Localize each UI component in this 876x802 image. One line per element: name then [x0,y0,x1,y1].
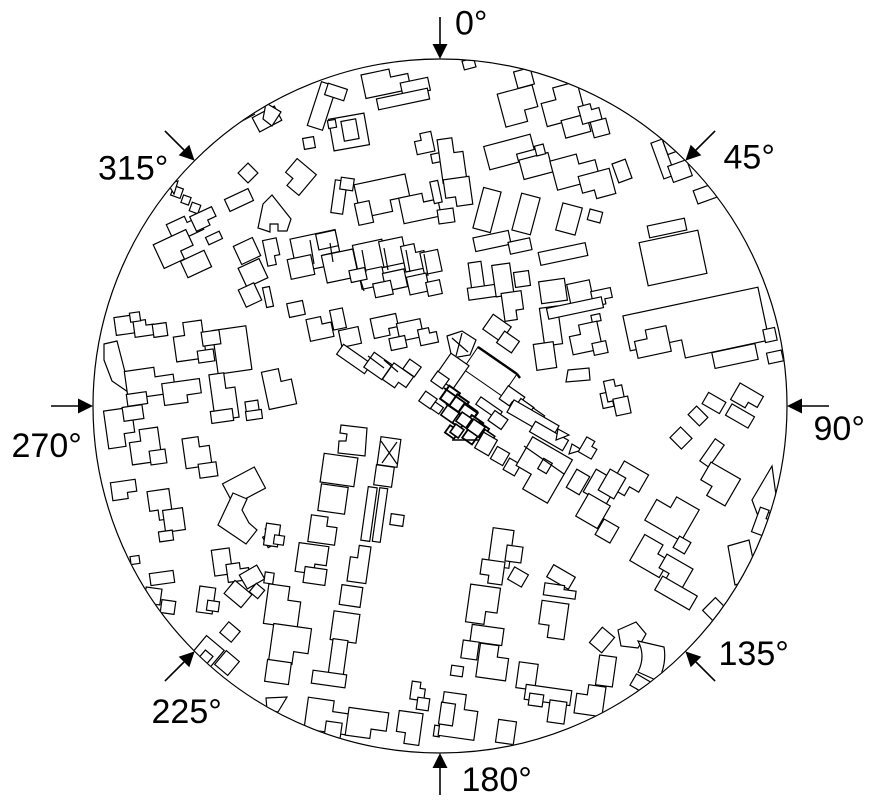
svg-text:225°: 225° [152,693,222,731]
svg-text:270°: 270° [12,427,82,465]
svg-text:315°: 315° [98,150,168,188]
svg-text:90°: 90° [814,410,865,448]
svg-text:0°: 0° [455,5,488,43]
svg-text:45°: 45° [724,139,775,177]
svg-text:180°: 180° [462,761,532,799]
svg-text:135°: 135° [719,635,789,673]
